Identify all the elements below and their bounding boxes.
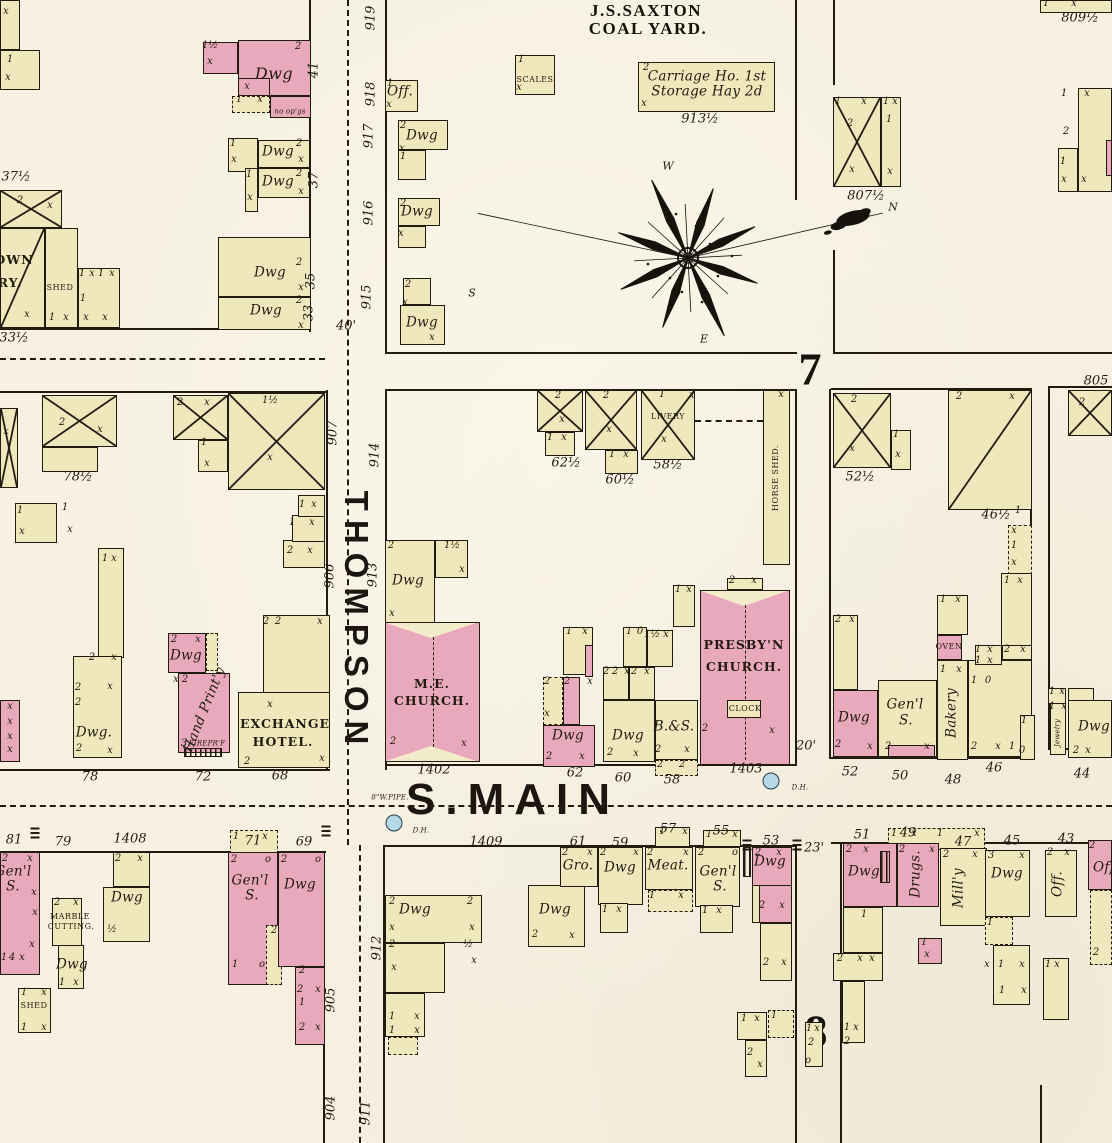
map-text: 71 [245,835,262,848]
map-text: x [732,830,738,840]
map-text: x [41,1023,47,1033]
map-text: x [63,313,69,323]
map-text: 1 [771,1011,777,1021]
map-text: SHED [21,1002,48,1010]
map-text: x [7,732,13,742]
map-text: 2 [171,635,177,645]
map-text: o [732,848,738,858]
map-text: 2 [835,615,841,625]
church-ridge-line [745,605,746,760]
map-text: x [3,7,9,17]
map-text: 0 [985,676,991,686]
map-text: 3 [988,851,994,861]
map-text: Dwg [539,903,571,917]
map-text: 1402 [417,764,450,777]
map-text: 50 [892,770,909,783]
map-text: x [262,832,268,842]
water-valve-icon [793,840,802,851]
map-text: x [633,749,639,759]
map-text: x [1011,558,1017,568]
map-text: Dwg [848,865,880,879]
brick-building [700,590,790,765]
map-text: 2 [295,42,301,52]
map-text: x [911,829,917,839]
map-text: Dwg [262,145,294,159]
map-text: 2 [405,280,411,290]
map-text: 48 [945,774,962,787]
map-text: 1 [987,918,993,928]
map-text: 2 [389,940,395,950]
map-text: 1 [1004,576,1010,586]
map-text: x [781,958,787,968]
brick-building [1106,140,1112,176]
map-text: 60 [615,772,632,785]
frame-building [993,945,1030,1005]
map-text: Drugs. [909,850,923,898]
map-text: 58½ [653,459,682,472]
map-text: 35 [305,273,318,290]
map-text: 1 [998,960,1004,970]
map-text: 0 [1019,746,1025,756]
map-text: 1 [17,506,23,516]
map-text: x [73,978,79,988]
map-text: x [386,100,392,110]
map-text: 1 [299,998,305,1008]
map-text: x [1061,175,1067,185]
map-text: 1 [400,152,406,162]
map-text: x [102,313,108,323]
map-text: 2 [612,667,618,677]
map-text: x [1081,175,1087,185]
map-text: Dwg [406,316,438,330]
map-text: 1 [1021,716,1027,726]
map-text: x [267,453,273,463]
map-text: 1 [547,433,553,443]
hydrant-marker [763,773,780,790]
map-text: x [398,229,404,239]
map-text: x [257,95,263,105]
map-text: 81 [6,834,23,847]
map-text: x [311,500,317,510]
map-text: x [109,269,115,279]
map-text: 2 [655,745,661,755]
map-text: x [41,988,47,998]
map-text: 2 [546,752,552,762]
church-gable [701,591,787,606]
map-text: 1 [289,518,295,528]
map-text: x [459,565,465,575]
map-text: x [895,450,901,460]
map-text: 1 [1061,89,1067,99]
map-text: 2 [555,391,561,401]
map-text: x [89,269,95,279]
map-text: 1 [79,269,85,279]
map-text: 1 [21,1023,27,1033]
map-text: x [1020,645,1026,655]
map-text: 1 [626,627,632,637]
map-text: 1 [835,97,841,107]
street-line-dashed [359,845,361,1143]
map-text: PRESBY'N [704,639,785,652]
map-text: 1 [1009,742,1015,752]
map-text: x [461,739,467,749]
map-text: 2 [390,737,396,747]
church-gable [386,623,476,638]
map-text: Dwg [838,711,870,725]
map-text: x [661,435,667,445]
map-text: 2 [808,1038,814,1048]
map-text: x [7,702,13,712]
map-text: 2 [657,760,663,770]
map-text: 2 [467,897,473,907]
map-text: 1 [609,450,615,460]
map-text: 1 [230,139,236,149]
map-text: 1 [62,503,68,513]
map-text: 2 [75,683,81,693]
map-text: x [315,1023,321,1033]
map-text: 1 [741,1014,747,1024]
map-text: Gen'l [887,698,924,712]
map-text: x [754,1014,760,1024]
map-text: x [1021,986,1027,996]
map-text: Dwg. [76,726,113,740]
map-text: x [317,617,323,627]
map-text: 20' [796,740,816,753]
map-text: x [1059,687,1065,697]
map-text: x [849,615,855,625]
map-text: x [402,298,408,308]
map-text: 1 [659,390,665,400]
map-text: x [623,450,629,460]
map-text: 1 [1011,541,1017,551]
map-text: x [678,891,684,901]
map-text: Gro. [563,859,594,873]
street-line-dashed [347,0,349,845]
map-text: x [1064,848,1070,858]
map-text: 4 [9,953,15,963]
map-text: x [67,525,73,535]
map-text: 2 [1073,746,1079,756]
map-text: x [414,1026,420,1036]
map-text: x [389,923,395,933]
map-text: ½ [107,925,117,935]
map-text: Gen'l [0,865,32,879]
frame-building [1058,148,1078,192]
map-text: x [849,444,855,454]
map-text: Dwg [284,878,316,892]
map-text: 1 [893,430,899,440]
coal-yard-title-line1: J.S.SAXTON [590,1,702,21]
map-text: x [7,745,13,755]
map-text: 1 [49,313,55,323]
map-text: 1 [921,938,927,948]
map-text: 2 [400,121,406,131]
map-text: 2 [275,617,281,627]
map-text: no op'gs [274,109,305,116]
map-text: x [779,901,785,911]
map-text: 916 [363,201,376,226]
map-text: OVEN [935,643,962,651]
map-text: 2 [281,855,287,865]
map-text: x [1054,960,1060,970]
map-text: x [1084,89,1090,99]
frame-building [228,393,325,490]
map-text: x [716,906,722,916]
map-text: x [757,1060,763,1070]
s-main-street-label: S.MAIN [406,775,620,825]
map-text: 1409 [469,836,502,849]
map-text: x [1009,392,1015,402]
frame-building [833,615,858,690]
map-text: x [47,201,53,211]
map-text: x [641,99,647,109]
map-text: 2 [851,395,857,405]
map-text: 805 [1084,375,1109,388]
map-text: 1 [1049,687,1055,697]
map-text: 1 [649,891,655,901]
brick-building [585,645,593,677]
map-text: x [869,954,875,964]
map-text: Mill'y [952,868,966,908]
map-text: x [924,742,930,752]
map-text: 53 [763,835,780,848]
map-text: 2 [847,119,853,129]
map-text: 1 [233,832,239,842]
map-text: x [204,398,210,408]
map-text: 1 [1045,960,1051,970]
map-text: 1 [80,294,86,304]
map-text: 2 [729,576,735,586]
map-text: S. [6,880,20,894]
map-text: 40' [336,320,356,333]
map-text: x [469,923,475,933]
map-text: 1 [299,500,305,510]
map-text: 33½ [0,332,29,345]
map-text: x [195,635,201,645]
map-text: x [579,752,585,762]
map-text: 41 [308,62,321,79]
map-text: 1 [891,829,897,839]
map-text: 2 [679,760,685,770]
map-text: 2 [532,930,538,940]
map-text: 1 [566,627,572,637]
map-text: 68 [272,770,289,783]
map-text: o [265,855,271,865]
map-text: 1 [389,1026,395,1036]
map-text: x [561,433,567,443]
map-text: 2 [59,418,65,428]
map-text: 37 [308,172,321,189]
map-text: CHURCH. [394,695,470,708]
frame-building [833,97,881,187]
map-text: 904 [325,1096,338,1121]
map-text: 62½ [551,457,580,470]
map-text: Storage Hay 2d [651,85,762,99]
map-text: 2 [1093,948,1099,958]
map-text: 2 [244,757,250,767]
map-text: x [863,845,869,855]
map-text: x [684,745,690,755]
map-text: 1 [102,554,108,564]
map-text: Dwg [552,729,584,743]
frame-building [98,548,124,658]
map-text: 3 [181,739,187,749]
map-text: 1 [1015,506,1021,516]
property-line [795,390,797,765]
map-text: 2 [299,1023,305,1033]
map-text: Dwg [991,867,1023,881]
map-text: Meat. [647,859,688,873]
map-text: x [559,415,565,425]
map-text: 1 [940,665,946,675]
map-text: 1 [1049,702,1055,712]
map-text: x [1011,526,1017,536]
map-text: 2 [296,139,302,149]
map-text: x [984,960,990,970]
map-text: 46½ [981,509,1010,522]
map-text: D.H. [413,828,430,835]
map-text: x [587,677,593,687]
map-text: 2 [296,296,302,306]
property-line [833,0,835,85]
map-text: 2 [177,398,183,408]
street-line-dashed [0,358,325,360]
map-text: x [319,754,325,764]
map-text: x [1019,851,1025,861]
map-text: Carriage Ho. 1st [648,70,767,84]
map-text: 51 [854,829,871,842]
map-text: 1½ [202,41,218,51]
map-text: M.E. [414,678,450,691]
map-text: 52½ [845,471,874,484]
map-text: 2 [54,898,60,908]
map-text: 2 [231,855,237,865]
thompson-street-label: THOMPSON [337,491,375,754]
map-text: 45 [1004,835,1021,848]
frame-building [760,923,792,981]
water-valve-icon [322,826,331,837]
ink-smudge [820,207,874,236]
map-text: 0 [637,627,643,637]
map-text: Dwg [612,729,644,743]
map-text: 2 [17,196,23,206]
map-text: x [19,953,25,963]
frame-building [948,390,1032,510]
map-text: 61 [570,836,587,849]
street-line-dashed [695,420,763,422]
map-text: 1 [21,988,27,998]
map-text: 1 [201,438,207,448]
map-text: 1½ [262,396,278,406]
map-text: x [267,700,273,710]
map-text: 46 [986,762,1003,775]
map-text: x [83,313,89,323]
map-text: 2 [296,258,302,268]
map-text: 79 [55,836,72,849]
map-text: x [857,954,863,964]
map-text: x [582,627,588,637]
map-text: 1 [975,656,981,666]
map-text: 2 [296,169,302,179]
map-text: 44 [1074,768,1091,781]
map-text: S. [245,889,259,903]
map-text: x [97,425,103,435]
map-text: 1 [886,115,892,125]
map-text: 1 [1043,0,1049,9]
property-line [829,389,831,759]
map-text: 919 [365,6,378,31]
property-line [831,757,1032,759]
map-text: Dwg [111,891,143,905]
map-text: x [682,827,688,837]
map-text: 2 [76,744,82,754]
map-text: 2 [271,926,277,936]
map-text: o [259,960,265,970]
property-line [833,250,835,353]
map-text: OWN [0,254,34,267]
map-text: 2 [1047,848,1053,858]
map-text: 2 [115,854,121,864]
map-text: 2 [603,667,609,677]
map-text: x [972,850,978,860]
map-text: x [307,546,313,556]
map-text: 1 [518,55,524,65]
map-text: x [471,956,477,966]
map-text: x [929,845,935,855]
map-text: 2 [899,845,905,855]
map-text: x [887,167,893,177]
map-text: S. [899,714,913,728]
map-text: x [298,321,304,331]
map-text: 1½ [444,541,460,551]
map-text: 1 [236,95,242,105]
map-text: 60½ [605,474,634,487]
map-text: x [107,682,113,692]
map-text: 2 [835,740,841,750]
map-text: Dwg [262,175,294,189]
map-text: 47 [955,836,972,849]
map-text: x [849,165,855,175]
map-text: 1 [675,585,681,595]
map-text: x [244,82,250,92]
map-text: 2 [956,392,962,402]
map-text: 1 [702,906,708,916]
map-text: 2 [846,845,852,855]
map-text: 1 [706,830,712,840]
map-text: 62 [567,767,584,780]
map-text: 1 [937,829,943,839]
map-text: 1 [940,595,946,605]
frame-building [42,395,117,447]
map-text: x [111,554,117,564]
map-text: x [1085,746,1091,756]
map-text: ½ [463,940,473,950]
map-text: x [7,717,13,727]
map-text: x [207,57,213,67]
map-text: 59 [612,837,629,850]
map-text: 1 [232,960,238,970]
map-text: 2 [400,199,406,209]
compass-west-label: W [662,160,673,173]
map-text: Dwg [406,129,438,143]
map-text: 2 [600,848,606,858]
map-text: x [995,742,1001,752]
map-text: 1 [59,978,65,988]
map-text: 2 [388,541,394,551]
map-text: Dwg [170,649,202,663]
map-text: Dwg [250,304,282,318]
map-text: 907 [327,421,340,446]
